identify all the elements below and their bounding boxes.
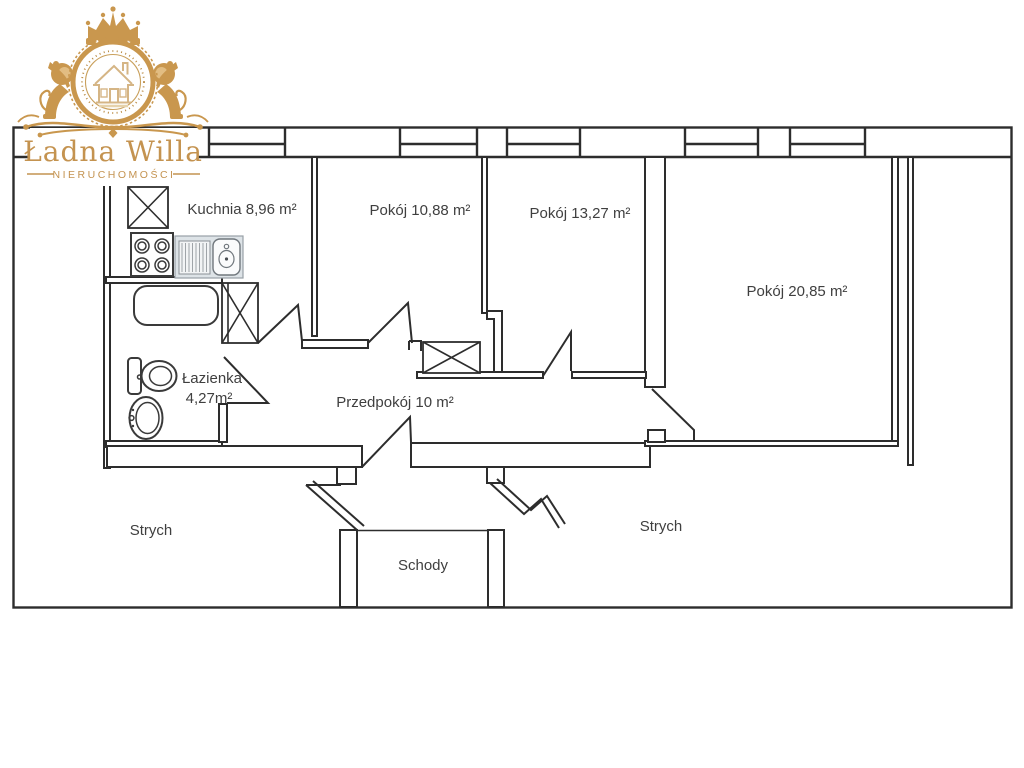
wall-stairs-left (340, 530, 357, 607)
brand-tagline: NIERUCHOMOŚCI (53, 168, 176, 181)
stairs-break-right (490, 479, 565, 528)
stove-icon (131, 233, 173, 276)
lion-left-icon (40, 61, 73, 119)
room-label-room2: Pokój 13,27 m² (530, 205, 631, 222)
shaft-symbol-bathroom (222, 283, 258, 343)
wall-room3-door-tick (648, 430, 665, 442)
door-opening-kitchen (258, 305, 302, 343)
room-label-bathroom: Łazienka (182, 370, 243, 387)
bathroom-fixtures (128, 286, 218, 439)
door-opening-room2 (543, 332, 571, 376)
wall-room1-room2 (482, 157, 487, 313)
bathtub-icon (134, 286, 218, 325)
floor-plan-svg: Kuchnia 8,96 m² Pokój 10,88 m² Pokój 13,… (0, 0, 1024, 768)
wall-room3-bottom (645, 441, 898, 446)
room-label-room3: Pokój 20,85 m² (747, 283, 848, 300)
washbasin-icon (129, 397, 162, 439)
wall-hallway-bottom-left (107, 446, 362, 467)
wall-stairs-right (488, 530, 504, 607)
hallway-notch (409, 341, 421, 351)
logo: Ładna Willa NIERUCHOMOŚCI (18, 6, 208, 186)
wall-tick-left (337, 467, 356, 484)
room-label-hallway: Przedpokój 10 m² (336, 394, 454, 411)
room-label-attic-right: Strych (640, 518, 683, 535)
wall-hallway-top-right (572, 372, 646, 378)
room-label-attic-left: Strych (130, 522, 173, 539)
wall-apartment-right (908, 157, 913, 465)
room-label-kitchen: Kuchnia 8,96 m² (187, 201, 296, 218)
shaft-symbol-kitchen (128, 187, 168, 228)
room-label-bathroom-area: 4,27m² (186, 390, 233, 407)
room-label-room1: Pokój 10,88 m² (370, 202, 471, 219)
floor-plan-page: Kuchnia 8,96 m² Pokój 10,88 m² Pokój 13,… (0, 0, 1024, 768)
stairs-break-spike (362, 417, 411, 467)
shaft-symbol-hallway (423, 342, 480, 373)
toilet-icon (128, 358, 177, 394)
room-label-stairs: Schody (398, 557, 449, 574)
top-wall-windows (209, 128, 865, 158)
stairs-break-left (306, 481, 364, 530)
door-opening-room1 (368, 303, 412, 343)
wall-hallway-bottom-right (411, 443, 650, 467)
kitchen-fixtures (131, 233, 243, 278)
door-openings (224, 303, 694, 530)
wall-room3-right (892, 157, 898, 446)
wall-room2-stub (487, 311, 502, 372)
crown-icon (86, 6, 140, 45)
wall-apartment-left (104, 157, 110, 468)
lion-right-icon (153, 61, 186, 119)
wall-tick-right (487, 467, 504, 483)
kitchen-sink-icon (175, 236, 243, 278)
brand-name: Ładna Willa (23, 135, 203, 168)
wall-bathroom-door-stub (219, 404, 227, 442)
emblem-circle (69, 38, 158, 127)
wall-kitchen-bottom (302, 340, 368, 348)
wall-kitchen-room1 (312, 157, 317, 336)
wall-room2-room3 (645, 157, 665, 387)
